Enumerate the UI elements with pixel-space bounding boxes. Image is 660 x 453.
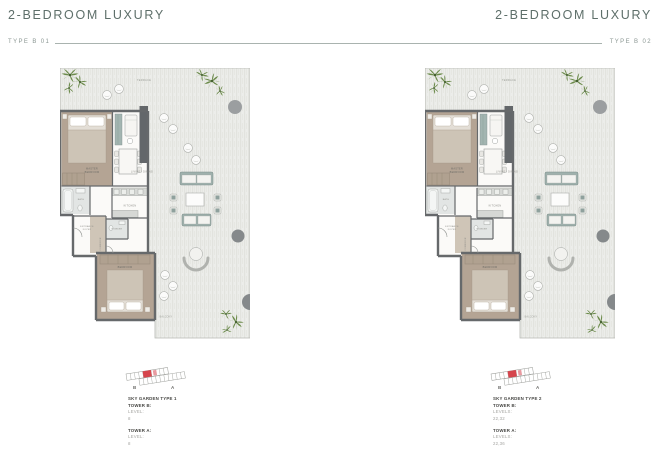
caption-tower-b-group: TOWER B: LEVEL: 8 xyxy=(128,403,253,423)
terrace-label: TERRACE xyxy=(502,78,516,82)
level-label: LEVELS: xyxy=(493,410,618,417)
floor-plan: TERRACE MASTER BEDROOM LIVING / DINING K… xyxy=(60,68,250,345)
bath-label: BATH xyxy=(78,198,85,201)
kitchen-label: KITCHEN xyxy=(124,205,137,208)
caption-title: SKY GARDEN TYPE 2 xyxy=(493,396,618,403)
terrace-label: TERRACE xyxy=(137,78,151,82)
powder-room-label: POWDER xyxy=(477,229,488,231)
caption-left: B A SKY GARDEN TYPE 1 TOWER B: LEVEL: 8 … xyxy=(120,362,250,452)
caption-tower-b-group: TOWER B: LEVELS: 22,32 xyxy=(493,403,618,423)
keyplan-tower-a-label: A xyxy=(171,385,174,390)
type-label-right: TYPE B 02 xyxy=(610,39,652,45)
keyplan-letters: B A xyxy=(485,385,565,393)
entrance-foyer-label: FOYER xyxy=(83,229,92,231)
caption-text-left: SKY GARDEN TYPE 1 TOWER B: LEVEL: 8 TOWE… xyxy=(128,396,253,453)
kitchen-label: KITCHEN xyxy=(489,205,502,208)
entrance-foyer-label: ENTRANCE xyxy=(445,225,459,228)
caption-title: SKY GARDEN TYPE 1 xyxy=(128,396,253,403)
page-title-left: 2-BEDROOM LUXURY xyxy=(8,8,165,22)
level-value: 22,36 xyxy=(493,441,618,448)
master-bedroom-label: BEDROOM xyxy=(450,171,465,174)
service-core xyxy=(505,106,514,163)
tower-label: TOWER A: xyxy=(493,428,618,435)
level-label: LEVEL: xyxy=(128,410,253,417)
living-dining-label: LIVING / DINING xyxy=(131,171,153,174)
type-label-left: TYPE B 01 xyxy=(8,39,50,45)
tower-label: TOWER A: xyxy=(128,428,253,435)
keyplan-tower-b-label: B xyxy=(133,385,136,390)
keyplan-tower-b-label: B xyxy=(498,385,501,390)
living-dining-label: LIVING / DINING xyxy=(496,171,518,174)
entrance-foyer-label: FOYER xyxy=(448,229,457,231)
divider-rule-left xyxy=(55,43,330,45)
bedroom2-bed xyxy=(465,255,515,312)
keyplan-highlight-unit xyxy=(143,370,152,378)
powder-room-label: POWDER xyxy=(112,229,123,231)
tower-label: TOWER B: xyxy=(128,403,253,410)
bath-label: BATH xyxy=(443,198,450,201)
column-icon xyxy=(593,100,607,114)
floor-plan: TERRACE MASTER BEDROOM LIVING / DINING K… xyxy=(425,68,615,345)
keyplan-letters: B A xyxy=(120,385,200,393)
caption-tower-a-group: TOWER A: LEVEL: 8 xyxy=(128,428,253,448)
page-title-right: 2-BEDROOM LUXURY xyxy=(495,8,652,22)
level-value: 8 xyxy=(128,416,253,423)
column-icon xyxy=(228,100,242,114)
level-value: 8 xyxy=(128,441,253,448)
floor-plan-right: TERRACE MASTER BEDROOM LIVING / DINING K… xyxy=(425,68,615,345)
level-label: LEVEL: xyxy=(128,434,253,441)
level-label: LEVELS: xyxy=(493,434,618,441)
corridor-label: CORRIDOR xyxy=(100,237,102,251)
bedroom2-bed xyxy=(100,255,150,312)
balcony-label: BALCONY xyxy=(160,316,173,319)
floor-plan-left: TERRACE MASTER BEDROOM LIVING / DINING K… xyxy=(60,68,250,345)
tower-label: TOWER B: xyxy=(493,403,618,410)
entrance-foyer-label: ENTRANCE xyxy=(80,225,94,228)
brochure-page: 2-BEDROOM LUXURY 2-BEDROOM LUXURY TYPE B… xyxy=(0,0,660,453)
caption-right: B A SKY GARDEN TYPE 2 TOWER B: LEVELS: 2… xyxy=(485,362,615,452)
service-core xyxy=(140,106,149,163)
balcony-label: BALCONY xyxy=(525,316,538,319)
keyplan-highlight-unit xyxy=(508,370,517,378)
caption-tower-a-group: TOWER A: LEVELS: 22,36 xyxy=(493,428,618,448)
corridor-label: CORRIDOR xyxy=(465,237,467,251)
bedroom2-label: BEDROOM xyxy=(483,266,498,269)
caption-text-right: SKY GARDEN TYPE 2 TOWER B: LEVELS: 22,32… xyxy=(493,396,618,453)
master-bedroom-label: BEDROOM xyxy=(85,171,100,174)
keyplan-tower-a-label: A xyxy=(536,385,539,390)
level-value: 22,32 xyxy=(493,416,618,423)
column-icon xyxy=(232,230,245,243)
divider-rule-right xyxy=(330,43,602,45)
bedroom2-label: BEDROOM xyxy=(118,266,133,269)
column-icon xyxy=(597,230,610,243)
